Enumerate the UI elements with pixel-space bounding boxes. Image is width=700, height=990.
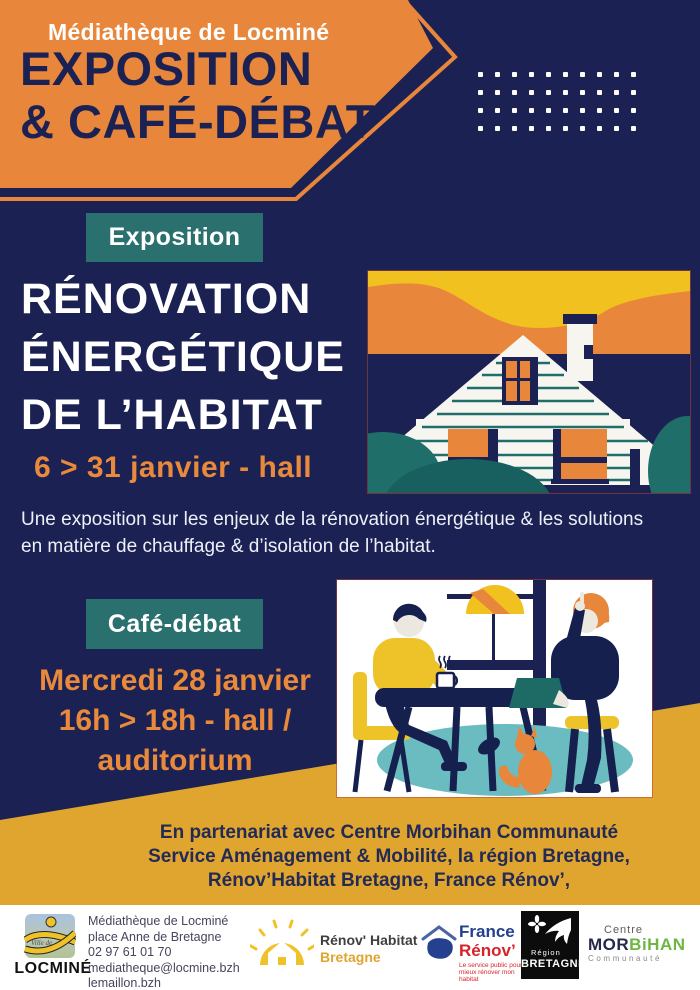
house-illustration <box>368 271 690 493</box>
centre-morbihan-logo: Centre MORBiHAN Communauté <box>588 924 686 963</box>
renov-habitat-region: Bretagne <box>320 949 417 966</box>
contact-website: lemaillon.bzh <box>88 976 240 990</box>
poster-title-line1: EXPOSITION <box>20 42 375 95</box>
expo-title: RÉNOVATION ÉNERGÉTIQUE DE L’HABITAT <box>21 270 345 444</box>
expo-title-line3: DE L’HABITAT <box>21 386 345 444</box>
poster: Médiathèque de Locminé EXPOSITION & CAFÉ… <box>0 0 700 990</box>
expo-date: 6 > 31 janvier - hall <box>34 451 312 485</box>
expo-title-line1: RÉNOVATION <box>21 270 345 328</box>
exposition-badge: Exposition <box>86 213 263 262</box>
locmine-name: LOCMINÉ <box>6 960 100 978</box>
contact-name: Médiathèque de Locminé <box>88 914 240 930</box>
dots-pattern-icon <box>478 72 636 131</box>
region-bretagne-logo: Région BRETAGNE <box>521 911 579 979</box>
partners-text: En partenariat avec Centre Morbihan Comm… <box>85 821 693 893</box>
footer: Ville de LOCMINÉ Médiathèque de Locminé … <box>0 905 700 990</box>
renov-habitat-name: Rénov' Habitat <box>320 932 417 949</box>
france-renov-tagline: Le service public pour mieux rénover mon… <box>459 962 523 983</box>
poster-title-line2: & CAFÉ-DÉBAT <box>20 95 375 148</box>
france-renov-icon <box>420 925 458 961</box>
renov-habitat-sun-icon <box>250 919 314 973</box>
cafe-debat-badge: Café-débat <box>86 599 263 649</box>
poster-title: EXPOSITION & CAFÉ-DÉBAT <box>20 42 375 148</box>
expo-title-line2: ÉNERGÉTIQUE <box>21 328 345 386</box>
svg-text:Ville de: Ville de <box>31 939 52 947</box>
contact-email: mediatheque@locmine.bzh <box>88 961 240 977</box>
france-renov-logo: France Rénov’ <box>459 922 516 960</box>
expo-description: Une exposition sur les enjeux de la réno… <box>21 506 689 560</box>
contact-address: place Anne de Bretagne <box>88 930 240 946</box>
locmine-logo-icon: Ville de <box>24 913 76 959</box>
contact-block: Médiathèque de Locminé place Anne de Bre… <box>88 914 240 990</box>
renov-habitat-logo: Rénov' Habitat Bretagne <box>320 932 417 966</box>
cafe-illustration <box>337 580 652 797</box>
cafe-schedule: Mercredi 28 janvier 16h > 18h - hall / a… <box>5 661 345 781</box>
bretagne-ermine-icon <box>527 914 573 948</box>
contact-phone: 02 97 61 01 70 <box>88 945 240 961</box>
